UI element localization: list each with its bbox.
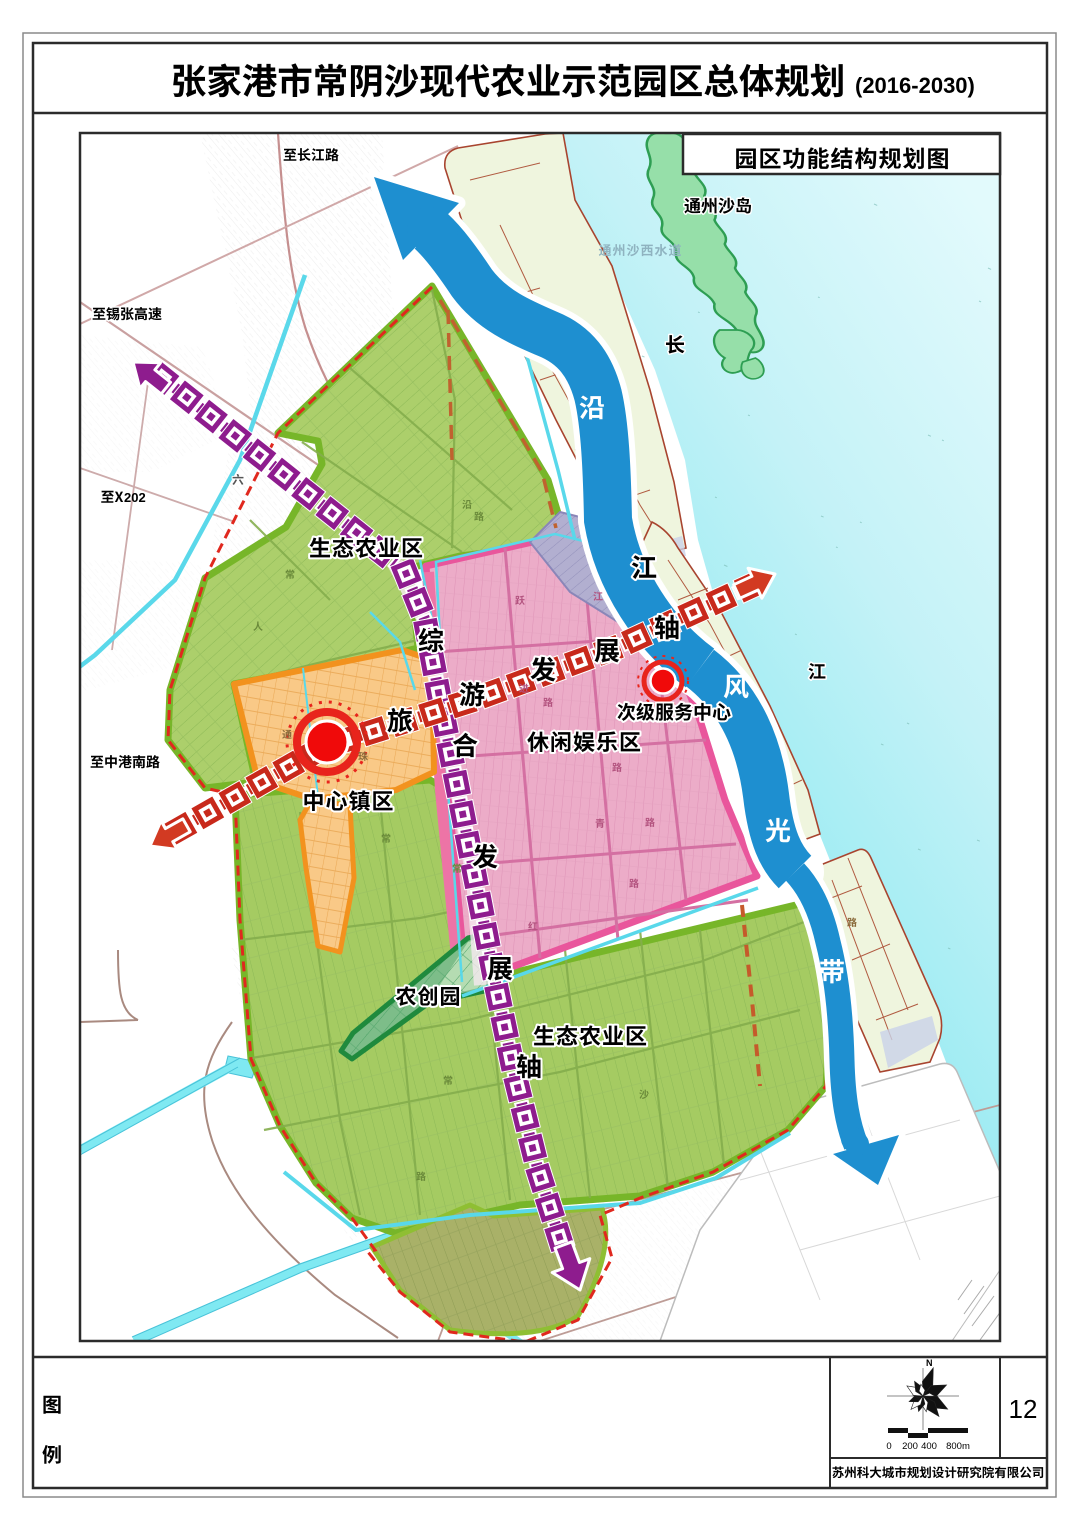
svg-text:800m: 800m <box>946 1441 970 1452</box>
svg-text:(2016-2030): (2016-2030) <box>855 73 975 98</box>
svg-text:0: 0 <box>886 1441 891 1452</box>
svg-text:400: 400 <box>921 1441 937 1452</box>
svg-text:12: 12 <box>1009 1394 1038 1424</box>
svg-text:202: 202 <box>124 490 146 505</box>
svg-text:200: 200 <box>902 1441 918 1452</box>
svg-text:N: N <box>926 1358 933 1368</box>
